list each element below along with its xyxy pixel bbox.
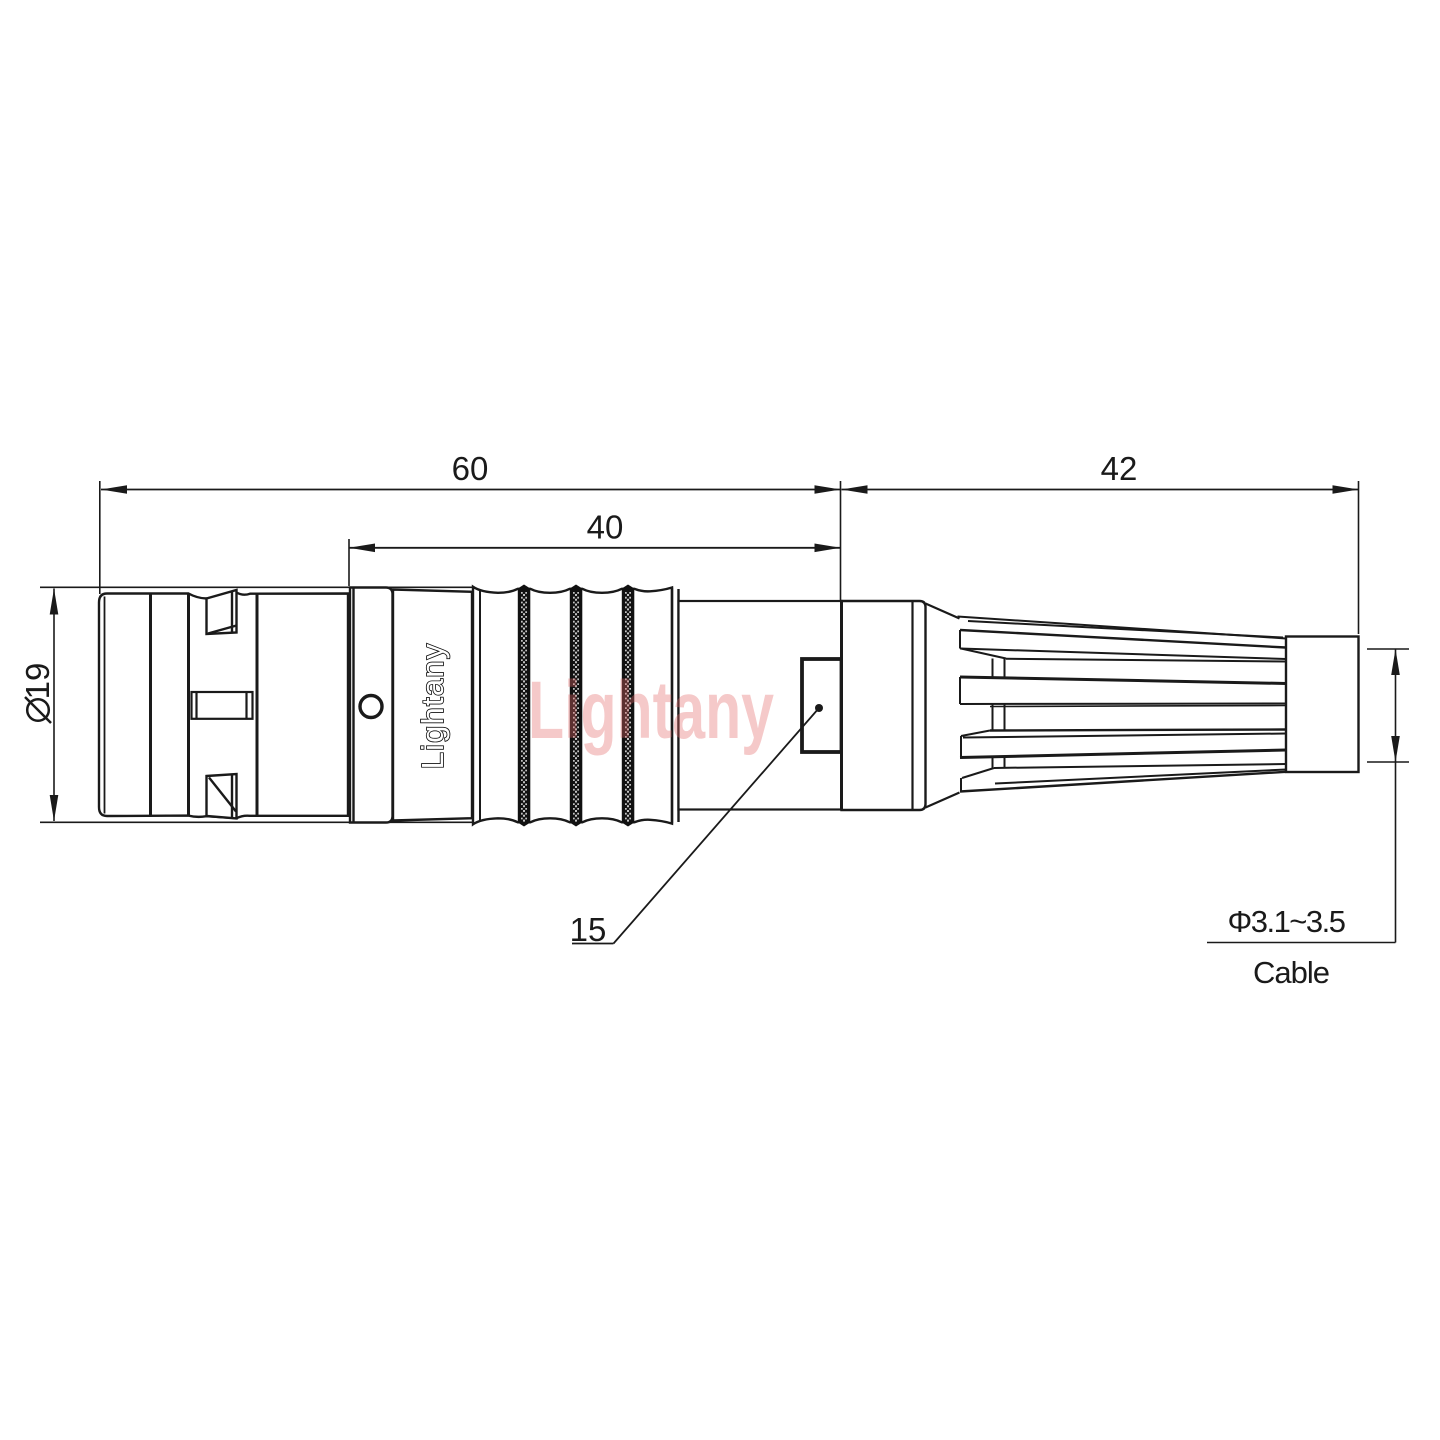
svg-text:15: 15 [570, 911, 607, 948]
svg-text:19: 19 [19, 663, 56, 700]
svg-text:42: 42 [1101, 450, 1138, 487]
svg-text:Φ3.1~3.5: Φ3.1~3.5 [1227, 904, 1344, 939]
svg-text:60: 60 [452, 450, 489, 487]
svg-text:40: 40 [587, 509, 624, 546]
svg-text:Cable: Cable [1253, 955, 1329, 990]
svg-text:Lightany: Lightany [528, 665, 774, 756]
svg-text:Lightany: Lightany [415, 643, 450, 770]
